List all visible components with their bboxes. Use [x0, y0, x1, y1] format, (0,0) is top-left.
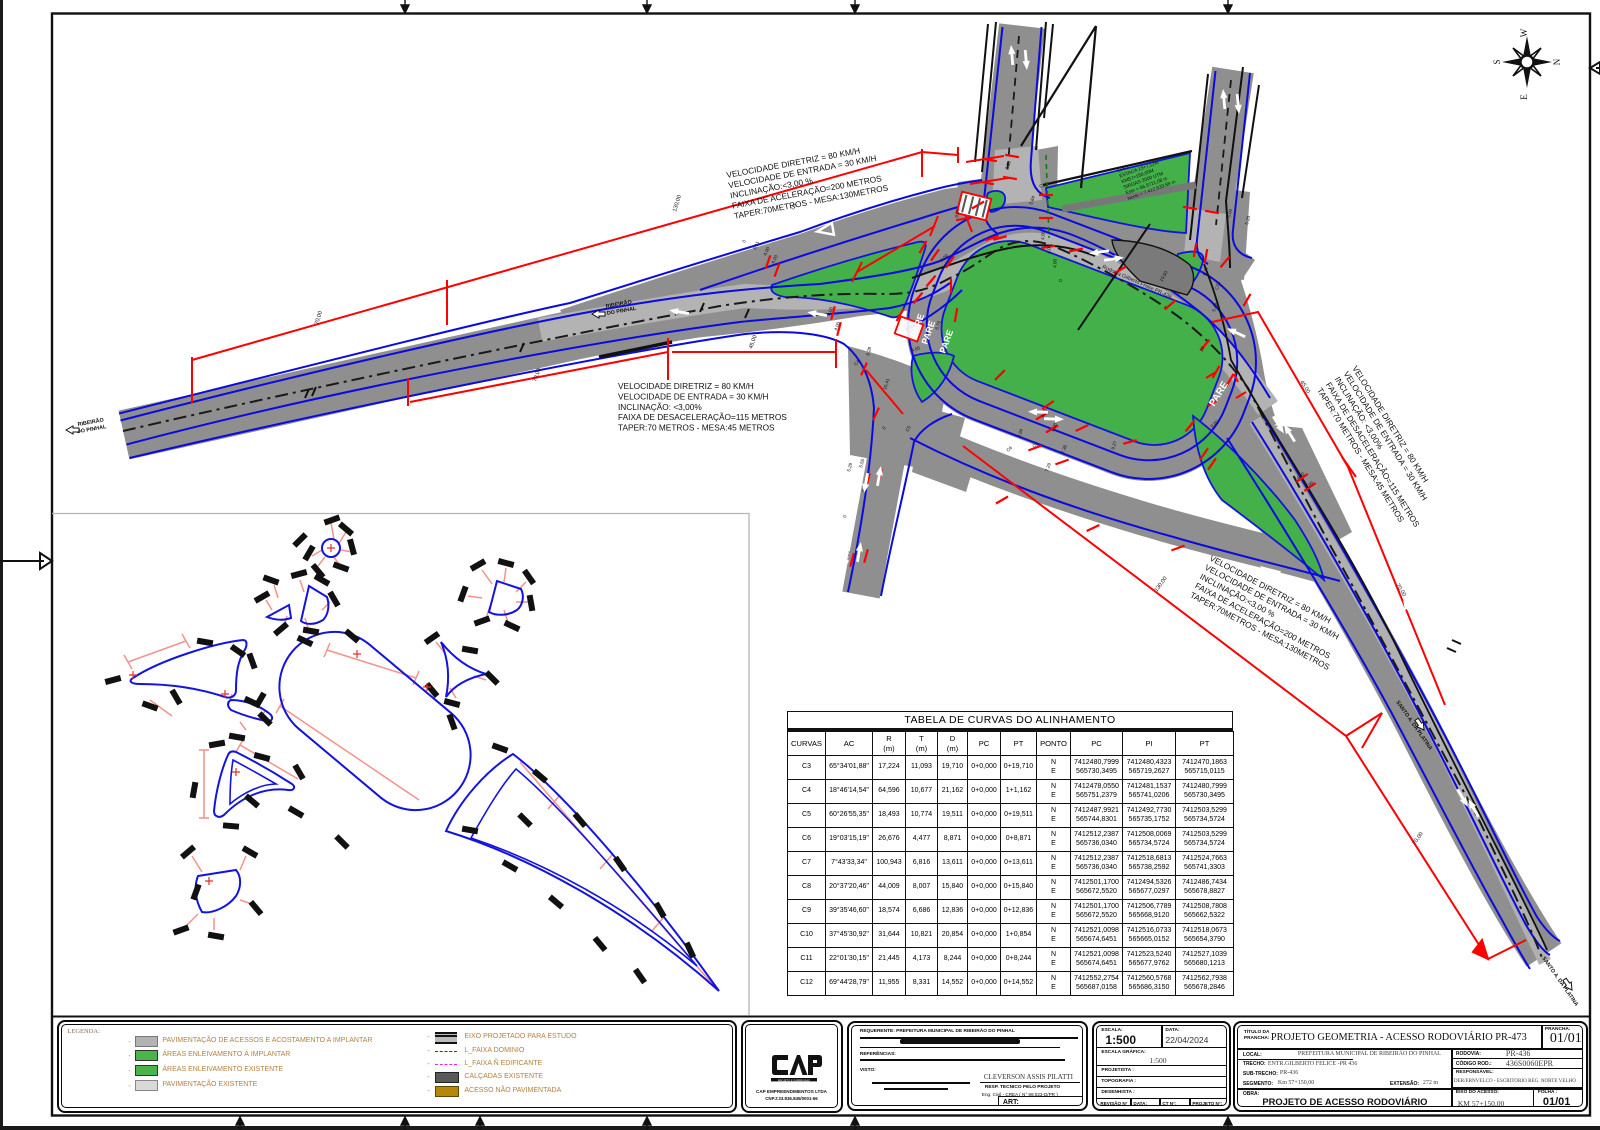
svg-text:5,29: 5,29 [846, 462, 853, 472]
svg-text:VELOCIDADE DE ENTRADA = 30 KM/: VELOCIDADE DE ENTRADA = 30 KM/H [618, 391, 769, 401]
svg-text:INCLINAÇÃO: <3,00%: INCLINAÇÃO: <3,00% [618, 402, 702, 412]
svg-text:70,00: 70,00 [1394, 583, 1407, 598]
svg-text:4,00: 4,00 [1046, 244, 1052, 254]
svg-text:4,00: 4,00 [1052, 258, 1058, 268]
svg-text:5,55: 5,55 [858, 458, 865, 468]
svg-text:45,00: 45,00 [1298, 380, 1311, 395]
svg-text:W: W [1519, 28, 1529, 37]
svg-text:FAIXA DE DESACELERAÇÃO=115 MET: FAIXA DE DESACELERAÇÃO=115 METROS [618, 412, 787, 422]
svg-text:70,00: 70,00 [532, 367, 542, 382]
svg-text:N: N [1552, 58, 1562, 65]
svg-text:C6: C6 [1005, 445, 1013, 453]
svg-text:E: E [1519, 94, 1529, 100]
svg-text:VELOCIDADE DIRETRIZ = 80 KM/H: VELOCIDADE DIRETRIZ = 80 KM/H [618, 381, 754, 391]
svg-text:TAPER:70 METROS - MESA:45 METR: TAPER:70 METROS - MESA:45 METROS [618, 423, 775, 433]
svg-text:5,20: 5,20 [1244, 215, 1251, 225]
svg-text:70,00: 70,00 [1412, 831, 1425, 846]
svg-text:130,00: 130,00 [1154, 576, 1169, 593]
svg-text:45,00: 45,00 [748, 334, 758, 349]
svg-text:7,29: 7,29 [1044, 462, 1052, 473]
svg-text:4,00: 4,00 [1040, 230, 1046, 240]
svg-text:0: 0 [842, 514, 847, 518]
svg-text:S: S [1492, 59, 1502, 64]
svg-text:SANTO A. DA PLATINA: SANTO A. DA PLATINA [1540, 956, 1579, 1008]
svg-text:130,00: 130,00 [672, 194, 683, 212]
svg-text:0: 0 [741, 239, 747, 244]
